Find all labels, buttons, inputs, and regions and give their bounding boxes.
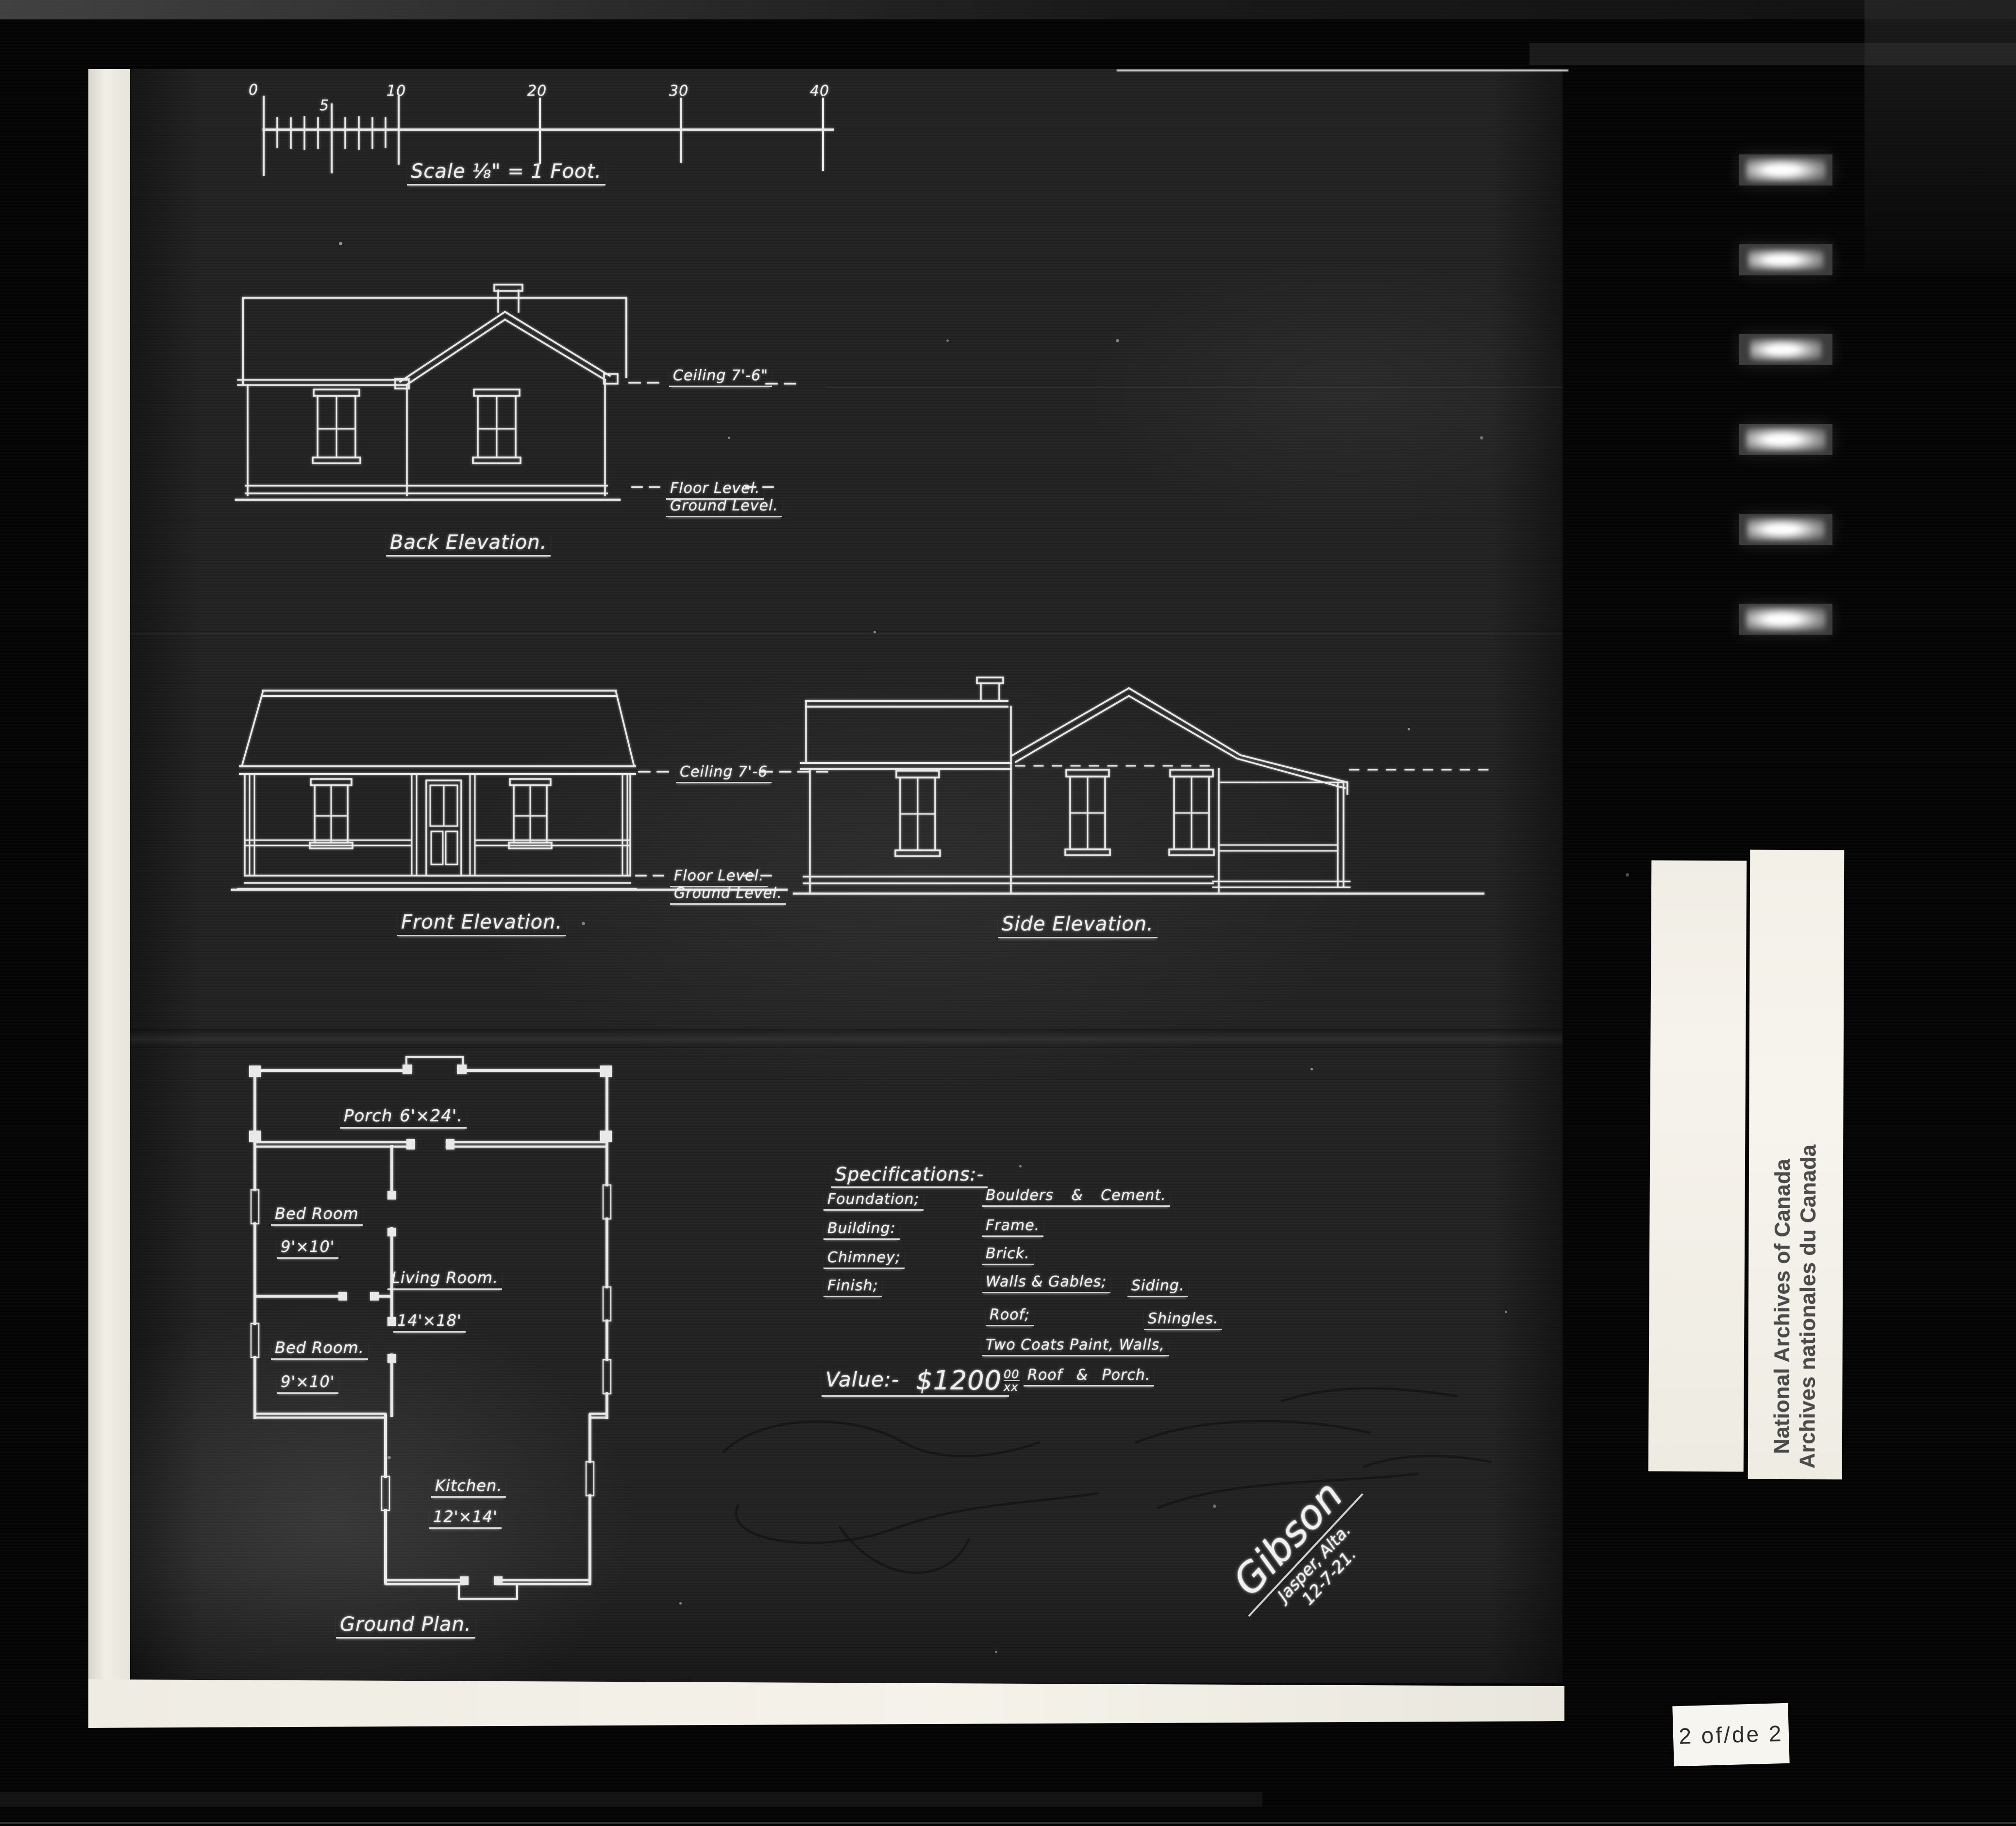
ground-plan-drawing: [245, 1049, 624, 1622]
back-floor-label: Floor Level.: [666, 480, 764, 500]
page-counter-label: 2 of/de 2: [1679, 1720, 1783, 1749]
plan-room-label-porch: Porch 6'×24'.: [340, 1106, 467, 1129]
plan-living-name: Living Room.: [387, 1268, 502, 1290]
scale-tick-label-0: 0: [249, 82, 258, 99]
sheet-bottom-margin: [88, 1679, 1564, 1728]
plan-living-size: 14'×18': [393, 1311, 466, 1333]
film-sprocket-glow-1: [1739, 154, 1832, 186]
film-sprocket-glow-2: [1739, 244, 1832, 275]
back-elevation-title: Back Elevation.: [386, 531, 551, 557]
film-sprocket-glow-4: [1739, 424, 1832, 455]
plan-bedroom1-name: Bed Room: [271, 1204, 363, 1226]
paper-crease-3: [130, 1029, 1562, 1048]
spec-roof-value: Shingles.: [1144, 1310, 1222, 1330]
spec-foundation-label: Foundation;: [823, 1191, 924, 1211]
scale-tick-label-5: 5: [319, 97, 329, 114]
front-ground-label: Ground Level.: [670, 885, 786, 905]
scale-tick-label-10: 10: [386, 83, 406, 100]
plan-bedroom2-name: Bed Room.: [271, 1338, 368, 1360]
sprocket-glow-core: [1746, 607, 1826, 631]
archive-stamp-text: National Archives of Canada Archives nat…: [1769, 1107, 1822, 1505]
specifications-title: Specifications:-: [831, 1164, 988, 1188]
page-counter: 2 of/de 2: [1672, 1703, 1789, 1767]
blank-paper-strip: [1648, 860, 1747, 1471]
paper-crease-2: [130, 631, 1562, 636]
spec-building-value: Frame.: [982, 1217, 1043, 1237]
plan-bedroom2-size: 9'×10': [277, 1372, 338, 1394]
scale-tick-label-20: 20: [527, 83, 547, 100]
archive-stamp-line-1: National Archives of Canada: [1769, 1107, 1797, 1505]
plan-bedroom1-size: 9'×10': [277, 1237, 338, 1259]
back-ground-label: Ground Level.: [666, 497, 782, 517]
sprocket-glow-core: [1746, 158, 1826, 182]
value-cents-sup: 00: [1004, 1369, 1020, 1380]
spec-chimney-value: Brick.: [982, 1245, 1034, 1265]
microfilm-frame: 0 5 10 20 30 40 Scale ⅛" = 1 Foot. Ceili…: [0, 0, 2016, 1826]
film-bottom-edge-line: [0, 1822, 2016, 1824]
film-top-band: [0, 0, 2016, 19]
spec-paint-line: Two Coats Paint, Walls,: [982, 1336, 1169, 1356]
spec-finish-label: Finish;: [823, 1277, 882, 1297]
plan-kitchen-name: Kitchen.: [431, 1476, 506, 1498]
sprocket-glow-core: [1747, 518, 1825, 541]
ground-plan-title: Ground Plan.: [336, 1613, 475, 1639]
sheet-left-margin: [88, 69, 131, 1724]
side-elevation-drawing: [791, 677, 1500, 911]
porch-size: 6'×24'.: [400, 1106, 463, 1126]
scale-tick-label-30: 30: [669, 83, 689, 100]
spec-foundation-value: Boulders & Cement.: [982, 1187, 1170, 1207]
film-sprocket-glow-6: [1739, 604, 1832, 635]
back-ceiling-label: Ceiling 7'-6": [669, 367, 772, 387]
paper-crease-1: [825, 385, 1562, 389]
film-right-column-band: [1865, 0, 2016, 272]
sprocket-glow-core: [1746, 427, 1826, 452]
spec-roof-label: Roof;: [986, 1306, 1034, 1326]
spec-building-label: Building:: [823, 1220, 900, 1240]
dust-specks: [0, 0, 1, 1]
archive-stamp-strip: National Archives of Canada Archives nat…: [1748, 850, 1845, 1480]
film-sprocket-glow-3: [1739, 334, 1832, 365]
porch-name: Porch: [344, 1106, 393, 1126]
scratch-line: [1117, 69, 1568, 71]
spec-finish-value-1: Walls & Gables;: [982, 1273, 1110, 1293]
sprocket-glow-core: [1748, 249, 1824, 271]
plan-kitchen-size: 12'×14': [429, 1507, 502, 1529]
spec-chimney-label: Chimney;: [823, 1249, 905, 1269]
sprocket-glow-core: [1750, 338, 1822, 361]
scale-caption: Scale ⅛" = 1 Foot.: [407, 160, 605, 186]
front-floor-label: Floor Level.: [670, 867, 768, 887]
archive-stamp-line-2: Archives nationales du Canada: [1795, 1107, 1822, 1505]
side-elevation-title: Side Elevation.: [998, 913, 1158, 938]
scale-tick-label-40: 40: [810, 83, 829, 100]
front-elevation-title: Front Elevation.: [397, 911, 566, 936]
spec-finish-value-2: Siding.: [1127, 1277, 1188, 1297]
front-ceiling-label: Ceiling 7'-6: [676, 763, 772, 783]
film-bottom-band: [0, 1792, 1262, 1807]
film-sprocket-glow-5: [1739, 514, 1832, 545]
